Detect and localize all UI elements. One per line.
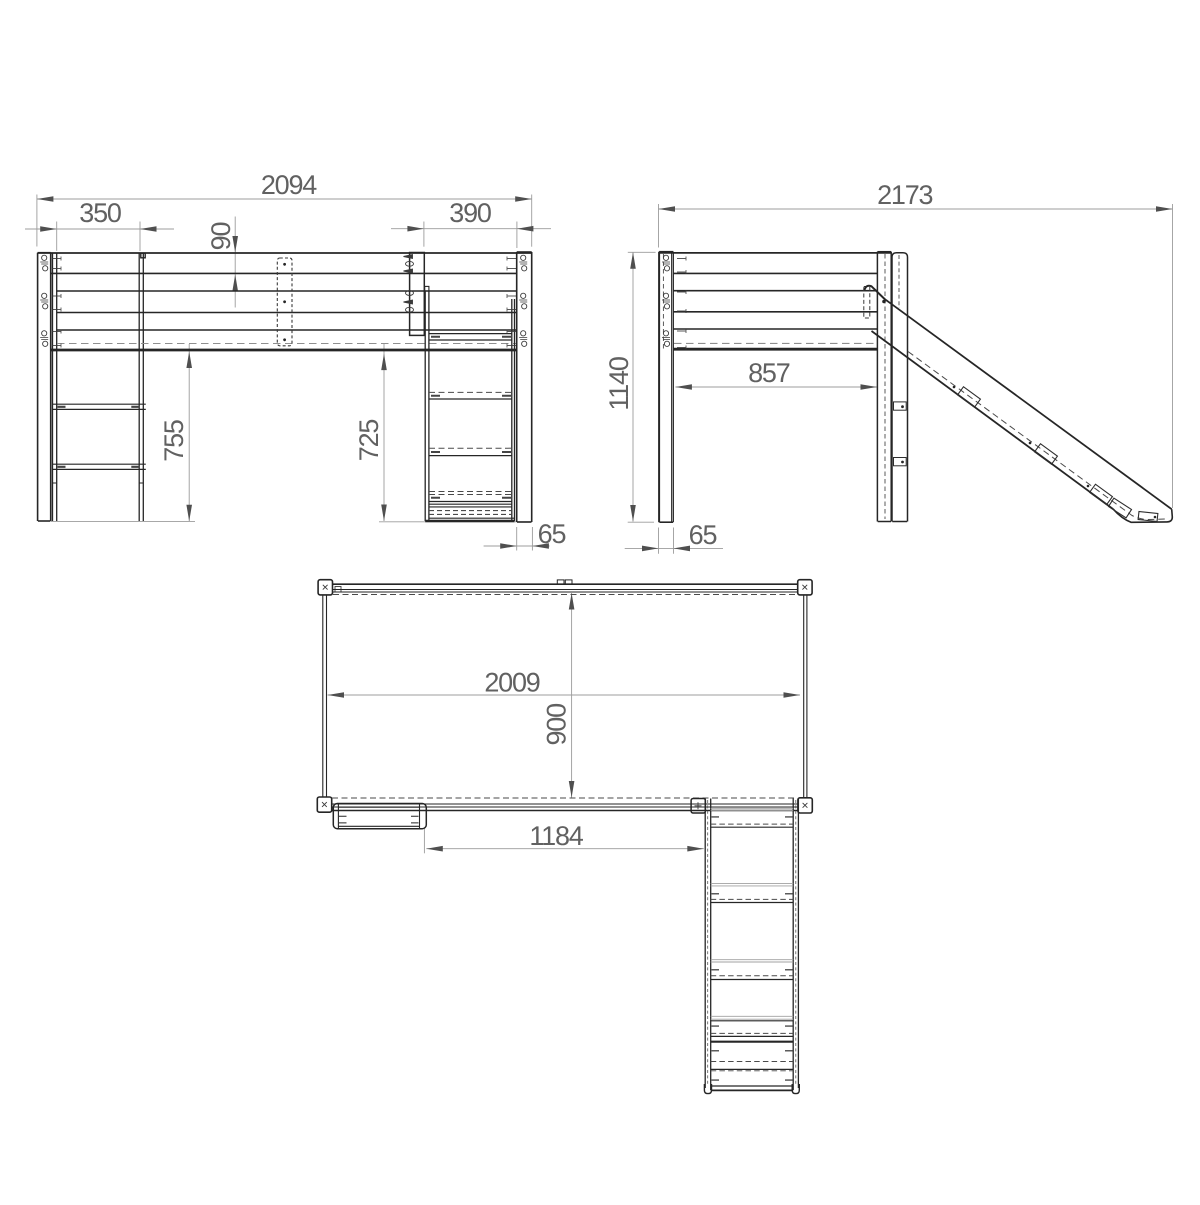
svg-text:1140: 1140 bbox=[604, 357, 634, 410]
svg-text:65: 65 bbox=[538, 519, 566, 549]
svg-text:350: 350 bbox=[79, 198, 121, 228]
svg-text:725: 725 bbox=[354, 420, 384, 462]
svg-text:857: 857 bbox=[748, 358, 790, 388]
svg-text:755: 755 bbox=[159, 420, 189, 462]
svg-text:65: 65 bbox=[689, 520, 717, 550]
svg-text:90: 90 bbox=[206, 223, 236, 251]
svg-text:390: 390 bbox=[449, 198, 491, 228]
svg-text:2173: 2173 bbox=[877, 180, 932, 210]
svg-text:2094: 2094 bbox=[261, 170, 317, 200]
svg-text:1184: 1184 bbox=[529, 821, 583, 851]
svg-text:2009: 2009 bbox=[484, 668, 539, 698]
svg-text:900: 900 bbox=[541, 704, 571, 746]
